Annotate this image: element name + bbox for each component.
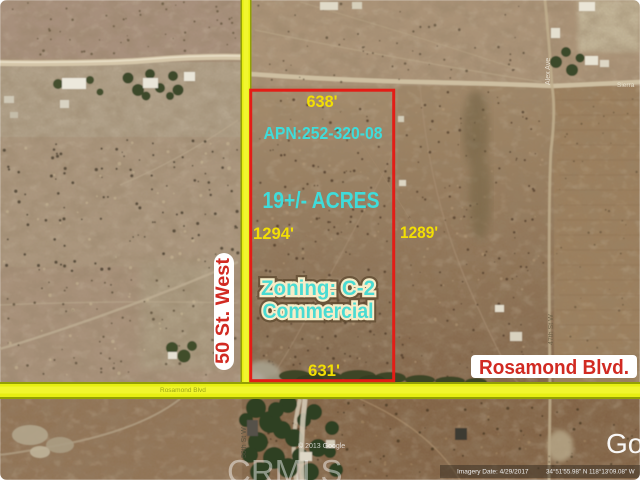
- svg-text:Commercial: Commercial: [263, 299, 374, 323]
- svg-text:34°51'55.98" N 118°13'09.08": 34°51'55.98" N 118°13'09.08" W: [546, 469, 635, 476]
- svg-text:Imagery Date: 4/29/2017: Imagery Date: 4/29/2017: [457, 469, 529, 476]
- svg-text:1289': 1289': [400, 223, 438, 242]
- svg-text:Zoning: C-2: Zoning: C-2: [261, 276, 375, 300]
- svg-text:Alex Ave: Alex Ave: [545, 58, 552, 85]
- svg-text:47th St W: 47th St W: [548, 314, 555, 345]
- svg-text:631': 631': [308, 361, 340, 380]
- svg-text:Rosamond Blvd.: Rosamond Blvd.: [479, 357, 629, 379]
- svg-text:1294': 1294': [253, 224, 294, 243]
- svg-text:Rosamond Blvd: Rosamond Blvd: [160, 387, 206, 394]
- svg-text:© 2013 Google: © 2013 Google: [298, 442, 345, 450]
- svg-text:50th St W: 50th St W: [241, 427, 248, 458]
- svg-text:APN:252-320-08: APN:252-320-08: [264, 123, 383, 143]
- svg-text:Go: Go: [606, 428, 640, 459]
- svg-text:638': 638': [307, 92, 338, 111]
- svg-text:Sierra: Sierra: [617, 82, 635, 89]
- svg-text:19+/- ACRES: 19+/- ACRES: [263, 187, 380, 213]
- svg-text:50 St. West: 50 St. West: [213, 257, 234, 364]
